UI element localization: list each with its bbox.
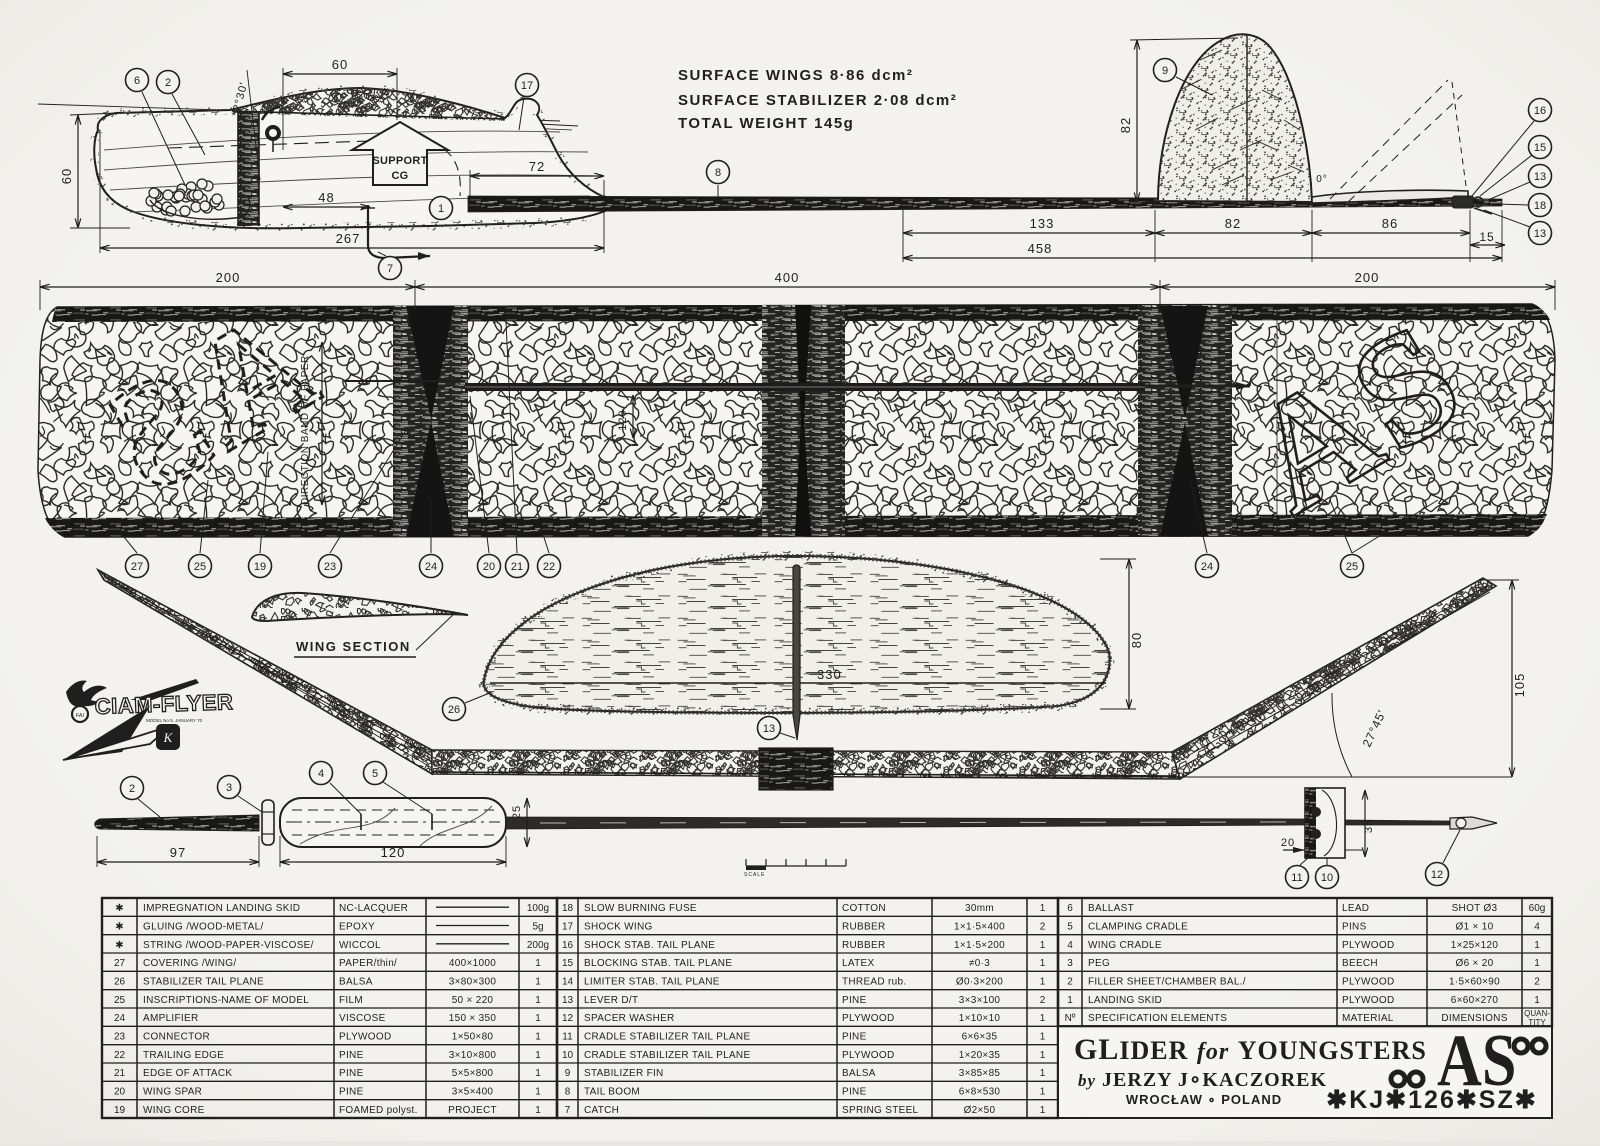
svg-text:1: 1: [1040, 1105, 1046, 1116]
svg-text:LEAD: LEAD: [1342, 903, 1369, 914]
svg-text:13: 13: [1534, 171, 1546, 183]
svg-text:18: 18: [1534, 200, 1546, 212]
svg-text:PINE: PINE: [339, 1087, 364, 1098]
svg-text:TOTAL WEIGHT 145g: TOTAL WEIGHT 145g: [678, 115, 854, 132]
svg-text:1: 1: [1040, 958, 1046, 969]
svg-text:EPOXY: EPOXY: [339, 922, 375, 933]
svg-text:6: 6: [1067, 903, 1073, 914]
svg-text:97: 97: [170, 845, 186, 860]
svg-text:267: 267: [336, 231, 361, 246]
svg-text:PLYWOOD: PLYWOOD: [842, 1013, 894, 1024]
svg-text:Ø2×50: Ø2×50: [964, 1105, 996, 1116]
svg-text:✱: ✱: [115, 903, 123, 914]
svg-text:BEECH: BEECH: [1342, 958, 1378, 969]
svg-text:CATCH: CATCH: [584, 1105, 619, 1116]
svg-text:35: 35: [1363, 819, 1375, 833]
svg-text:7: 7: [387, 263, 393, 275]
svg-text:400: 400: [775, 270, 800, 285]
svg-text:23: 23: [114, 1032, 126, 1043]
svg-text:Nº: Nº: [1065, 1013, 1076, 1024]
svg-text:2: 2: [165, 77, 171, 89]
svg-text:BLOCKING STAB. TAIL PLANE: BLOCKING STAB. TAIL PLANE: [584, 958, 732, 969]
svg-text:13: 13: [763, 723, 775, 735]
svg-text:3×3×100: 3×3×100: [959, 995, 1001, 1006]
svg-text:STABILIZER FIN: STABILIZER FIN: [584, 1068, 664, 1079]
svg-text:7: 7: [565, 1105, 571, 1116]
svg-text:GLIDER for YOUNGSTERS: GLIDER for YOUNGSTERS: [1074, 1033, 1427, 1066]
svg-text:1: 1: [535, 1013, 541, 1024]
svg-text:1×1·5×400: 1×1·5×400: [954, 922, 1005, 933]
svg-text:82: 82: [1118, 117, 1133, 133]
svg-text:PINE: PINE: [842, 1032, 867, 1043]
svg-text:by JERZY J∘KACZOREK: by JERZY J∘KACZOREK: [1078, 1069, 1327, 1091]
svg-text:21: 21: [114, 1068, 126, 1079]
svg-text:1×25×120: 1×25×120: [1451, 940, 1499, 951]
svg-text:14: 14: [562, 977, 574, 988]
svg-text:DIRECTION BAND OF PAPER: DIRECTION BAND OF PAPER: [300, 355, 311, 505]
svg-text:330: 330: [817, 667, 842, 682]
svg-text:2: 2: [129, 783, 135, 795]
svg-text:LEVER D/T: LEVER D/T: [584, 995, 638, 1006]
svg-text:1: 1: [1040, 940, 1046, 951]
svg-text:8: 8: [715, 167, 721, 179]
svg-text:9: 9: [1162, 65, 1168, 77]
svg-text:200: 200: [216, 270, 241, 285]
svg-text:11: 11: [562, 1032, 573, 1043]
svg-text:SURFACE STABILIZER 2·08 dcm²: SURFACE STABILIZER 2·08 dcm²: [678, 92, 957, 109]
svg-text:24: 24: [425, 561, 437, 573]
svg-text:1: 1: [1040, 1050, 1046, 1061]
svg-text:12: 12: [1431, 869, 1443, 881]
svg-text:24: 24: [1201, 561, 1213, 573]
svg-text:COTTON: COTTON: [842, 903, 886, 914]
svg-text:20: 20: [114, 1087, 126, 1098]
svg-text:PLYWOOD: PLYWOOD: [339, 1032, 391, 1043]
svg-text:6×60×270: 6×60×270: [1451, 995, 1499, 1006]
svg-text:SPRING STEEL: SPRING STEEL: [842, 1105, 919, 1116]
svg-text:22: 22: [114, 1050, 126, 1061]
svg-text:SUPPORT: SUPPORT: [372, 155, 427, 167]
svg-text:✱: ✱: [115, 922, 123, 933]
svg-text:3: 3: [1067, 958, 1073, 969]
svg-text:TAIL BOOM: TAIL BOOM: [584, 1087, 640, 1098]
svg-text:3×10×800: 3×10×800: [449, 1050, 497, 1061]
svg-text:60: 60: [59, 168, 74, 184]
svg-text:8: 8: [565, 1087, 571, 1098]
svg-text:FILLER SHEET/CHAMBER BAL./: FILLER SHEET/CHAMBER BAL./: [1088, 977, 1246, 988]
svg-text:WICCOL: WICCOL: [339, 940, 381, 951]
svg-text:3×5×400: 3×5×400: [452, 1087, 494, 1098]
svg-text:4: 4: [1534, 922, 1540, 933]
svg-text:IMPREGNATION LANDING SKID: IMPREGNATION LANDING SKID: [143, 903, 300, 914]
svg-text:Ø0·3×200: Ø0·3×200: [956, 977, 1003, 988]
svg-text:120: 120: [617, 409, 629, 430]
svg-text:26: 26: [114, 977, 126, 988]
svg-text:60g: 60g: [1529, 903, 1546, 914]
svg-text:PINE: PINE: [842, 1087, 867, 1098]
svg-text:TRAILING EDGE: TRAILING EDGE: [143, 1050, 224, 1061]
svg-text:5: 5: [372, 768, 378, 780]
svg-text:QUAN-: QUAN-: [1524, 1009, 1550, 1018]
svg-text:133: 133: [1030, 216, 1055, 231]
svg-text:1×10×10: 1×10×10: [959, 1013, 1001, 1024]
svg-text:17: 17: [521, 80, 533, 92]
svg-text:GLUING /WOOD-METAL/: GLUING /WOOD-METAL/: [143, 922, 264, 933]
svg-text:1: 1: [535, 1087, 541, 1098]
svg-text:23: 23: [324, 561, 336, 573]
svg-text:72: 72: [529, 159, 545, 174]
svg-text:24: 24: [114, 1013, 126, 1024]
svg-text:1: 1: [1067, 995, 1073, 1006]
svg-text:5: 5: [1067, 922, 1073, 933]
svg-text:SCALE: SCALE: [744, 872, 765, 878]
svg-text:Ø1 × 10: Ø1 × 10: [1456, 922, 1494, 933]
svg-text:50 × 220: 50 × 220: [452, 995, 494, 1006]
svg-text:1: 1: [1040, 1032, 1046, 1043]
svg-text:THREAD rub.: THREAD rub.: [842, 977, 906, 988]
svg-text:16: 16: [1534, 105, 1546, 117]
svg-text:1: 1: [535, 1050, 541, 1061]
svg-text:19: 19: [114, 1105, 126, 1116]
svg-text:60: 60: [332, 57, 348, 72]
svg-text:5g: 5g: [532, 922, 543, 933]
svg-text:PEG: PEG: [1088, 958, 1110, 969]
svg-text:1×20×35: 1×20×35: [959, 1050, 1001, 1061]
svg-text:10: 10: [1321, 872, 1333, 884]
svg-text:458: 458: [1028, 241, 1053, 256]
svg-text:SPECIFICATION ELEMENTS: SPECIFICATION ELEMENTS: [1088, 1013, 1227, 1024]
svg-text:26: 26: [448, 704, 460, 716]
svg-text:SHOCK STAB. TAIL PLANE: SHOCK STAB. TAIL PLANE: [584, 940, 715, 951]
svg-text:MATERIAL: MATERIAL: [1342, 1013, 1394, 1024]
svg-text:25: 25: [1346, 561, 1358, 573]
svg-text:SHOT Ø3: SHOT Ø3: [1452, 903, 1498, 914]
svg-text:15: 15: [562, 958, 574, 969]
svg-text:11: 11: [1291, 872, 1302, 884]
svg-text:WROCŁAW ∘ POLAND: WROCŁAW ∘ POLAND: [1126, 1092, 1282, 1107]
svg-text:NC-LACQUER: NC-LACQUER: [339, 903, 408, 914]
svg-text:INSCRIPTIONS-NAME OF MODEL: INSCRIPTIONS-NAME OF MODEL: [143, 995, 309, 1006]
svg-text:WING SECTION: WING SECTION: [296, 639, 411, 654]
svg-text:15: 15: [1534, 142, 1546, 154]
svg-text:STRING /WOOD-PAPER-VISCOSE/: STRING /WOOD-PAPER-VISCOSE/: [143, 940, 314, 951]
svg-text:2: 2: [1040, 922, 1046, 933]
svg-text:BALSA: BALSA: [339, 977, 373, 988]
svg-text:BALLAST: BALLAST: [1088, 903, 1134, 914]
svg-text:1×1·5×200: 1×1·5×200: [954, 940, 1005, 951]
svg-text:3×85×85: 3×85×85: [959, 1068, 1001, 1079]
svg-text:RUBBER: RUBBER: [842, 922, 885, 933]
svg-text:25: 25: [194, 561, 206, 573]
svg-text:105: 105: [1512, 673, 1527, 698]
svg-text:WING SPAR: WING SPAR: [143, 1087, 202, 1098]
svg-text:LANDING SKID: LANDING SKID: [1088, 995, 1162, 1006]
svg-text:82: 82: [1225, 216, 1241, 231]
svg-text:LIMITER STAB. TAIL PLANE: LIMITER STAB. TAIL PLANE: [584, 977, 720, 988]
svg-text:FAI: FAI: [76, 713, 85, 719]
svg-text:400×1000: 400×1000: [449, 958, 496, 969]
svg-text:5×5×800: 5×5×800: [452, 1068, 494, 1079]
svg-text:100g: 100g: [527, 903, 549, 914]
svg-text:STABILIZER TAIL PLANE: STABILIZER TAIL PLANE: [143, 977, 264, 988]
svg-text:1: 1: [1534, 995, 1540, 1006]
svg-text:AMPLIFIER: AMPLIFIER: [143, 1013, 199, 1024]
svg-text:K: K: [163, 730, 174, 745]
svg-text:BALSA: BALSA: [842, 1068, 876, 1079]
svg-text:4: 4: [1067, 940, 1073, 951]
svg-text:FILM: FILM: [339, 995, 363, 1006]
svg-text:20: 20: [1281, 837, 1295, 849]
svg-text:PLYWOOD: PLYWOOD: [1342, 995, 1394, 1006]
svg-text:1: 1: [535, 1105, 541, 1116]
svg-text:PAPER/thin/: PAPER/thin/: [339, 958, 397, 969]
svg-text:MODEL No 5. JANUARY 70: MODEL No 5. JANUARY 70: [146, 718, 203, 723]
svg-text:1: 1: [1040, 903, 1046, 914]
svg-text:200: 200: [1355, 270, 1380, 285]
svg-text:30mm: 30mm: [965, 903, 994, 914]
svg-text:6×6×35: 6×6×35: [962, 1032, 998, 1043]
svg-text:PLYWOOD: PLYWOOD: [1342, 977, 1394, 988]
svg-text:CRADLE STABILIZER TAIL PLANE: CRADLE STABILIZER TAIL PLANE: [584, 1050, 750, 1061]
svg-text:SPACER WASHER: SPACER WASHER: [584, 1013, 675, 1024]
svg-text:PLYWOOD: PLYWOOD: [1342, 940, 1394, 951]
svg-text:SHOCK WING: SHOCK WING: [584, 922, 653, 933]
svg-text:2: 2: [1067, 977, 1073, 988]
svg-text:1: 1: [535, 958, 541, 969]
svg-text:PINE: PINE: [842, 995, 867, 1006]
svg-text:1: 1: [1040, 1068, 1046, 1079]
svg-text:1: 1: [1040, 977, 1046, 988]
svg-text:4: 4: [318, 768, 324, 780]
svg-text:WING CRADLE: WING CRADLE: [1088, 940, 1162, 951]
svg-text:1: 1: [535, 995, 541, 1006]
svg-text:6×8×530: 6×8×530: [959, 1087, 1001, 1098]
svg-text:LATEX: LATEX: [842, 958, 874, 969]
svg-text:1: 1: [438, 203, 444, 215]
svg-text:2: 2: [1534, 977, 1540, 988]
svg-text:150 × 350: 150 × 350: [449, 1013, 497, 1024]
svg-text:CLAMPING CRADLE: CLAMPING CRADLE: [1088, 922, 1188, 933]
svg-text:21: 21: [511, 561, 523, 573]
svg-text:VISCOSE: VISCOSE: [339, 1013, 386, 1024]
svg-text:3×80×300: 3×80×300: [449, 977, 497, 988]
svg-text:✱KJ✱126✱SZ✱: ✱KJ✱126✱SZ✱: [1326, 1086, 1537, 1114]
svg-text:1: 1: [535, 977, 541, 988]
svg-text:CONNECTOR: CONNECTOR: [143, 1032, 210, 1043]
svg-text:SLOW BURNING FUSE: SLOW BURNING FUSE: [584, 903, 697, 914]
svg-text:SURFACE WINGS 8·86 dcm²: SURFACE WINGS 8·86 dcm²: [678, 67, 913, 84]
svg-text:CG: CG: [391, 170, 408, 182]
svg-text:13: 13: [562, 995, 574, 1006]
svg-text:≠0·3: ≠0·3: [969, 958, 990, 969]
svg-text:PLYWOOD: PLYWOOD: [842, 1050, 894, 1061]
svg-text:PROJECT: PROJECT: [448, 1105, 497, 1116]
svg-text:FOAMED polyst.: FOAMED polyst.: [339, 1105, 418, 1116]
svg-text:19: 19: [254, 561, 266, 573]
svg-text:17: 17: [562, 922, 574, 933]
svg-text:9: 9: [565, 1068, 571, 1079]
svg-text:EDGE OF ATTACK: EDGE OF ATTACK: [143, 1068, 232, 1079]
svg-text:120: 120: [381, 845, 406, 860]
svg-text:16: 16: [562, 940, 574, 951]
svg-text:48: 48: [318, 190, 334, 205]
svg-text:1: 1: [1534, 958, 1540, 969]
svg-text:0°: 0°: [1316, 174, 1328, 185]
svg-text:200g: 200g: [527, 940, 549, 951]
svg-text:12: 12: [562, 1013, 574, 1024]
svg-text:18: 18: [562, 903, 574, 914]
svg-text:1·5×60×90: 1·5×60×90: [1449, 977, 1500, 988]
svg-text:22: 22: [543, 561, 555, 573]
svg-text:✱: ✱: [115, 940, 123, 951]
svg-text:1: 1: [1040, 1087, 1046, 1098]
svg-text:80: 80: [1129, 632, 1144, 648]
svg-text:CRADLE STABILIZER TAIL PLANE: CRADLE STABILIZER TAIL PLANE: [584, 1032, 750, 1043]
svg-text:10: 10: [562, 1050, 574, 1061]
svg-text:27: 27: [114, 958, 126, 969]
svg-text:COVERING /WING/: COVERING /WING/: [143, 958, 236, 969]
svg-text:86: 86: [1382, 216, 1398, 231]
svg-text:1: 1: [1534, 940, 1540, 951]
svg-text:PINE: PINE: [339, 1068, 364, 1079]
svg-text:25: 25: [511, 805, 523, 819]
svg-text:PINS: PINS: [1342, 922, 1367, 933]
svg-text:25: 25: [114, 995, 126, 1006]
svg-text:RUBBER: RUBBER: [842, 940, 885, 951]
svg-text:3: 3: [226, 782, 232, 794]
svg-text:13: 13: [1534, 228, 1546, 240]
svg-text:PINE: PINE: [339, 1050, 364, 1061]
svg-text:1×50×80: 1×50×80: [452, 1032, 494, 1043]
svg-text:27: 27: [131, 561, 143, 573]
svg-text:Ø6 × 20: Ø6 × 20: [1456, 958, 1494, 969]
svg-text:1: 1: [535, 1068, 541, 1079]
svg-text:WING CORE: WING CORE: [143, 1105, 205, 1116]
svg-text:15: 15: [1479, 230, 1494, 244]
svg-text:CIAM-FLYER: CIAM-FLYER: [94, 689, 233, 719]
svg-text:6: 6: [134, 75, 140, 87]
svg-text:2: 2: [1040, 995, 1046, 1006]
svg-text:20: 20: [483, 561, 495, 573]
svg-text:1: 1: [535, 1032, 541, 1043]
svg-text:1: 1: [1040, 1013, 1046, 1024]
